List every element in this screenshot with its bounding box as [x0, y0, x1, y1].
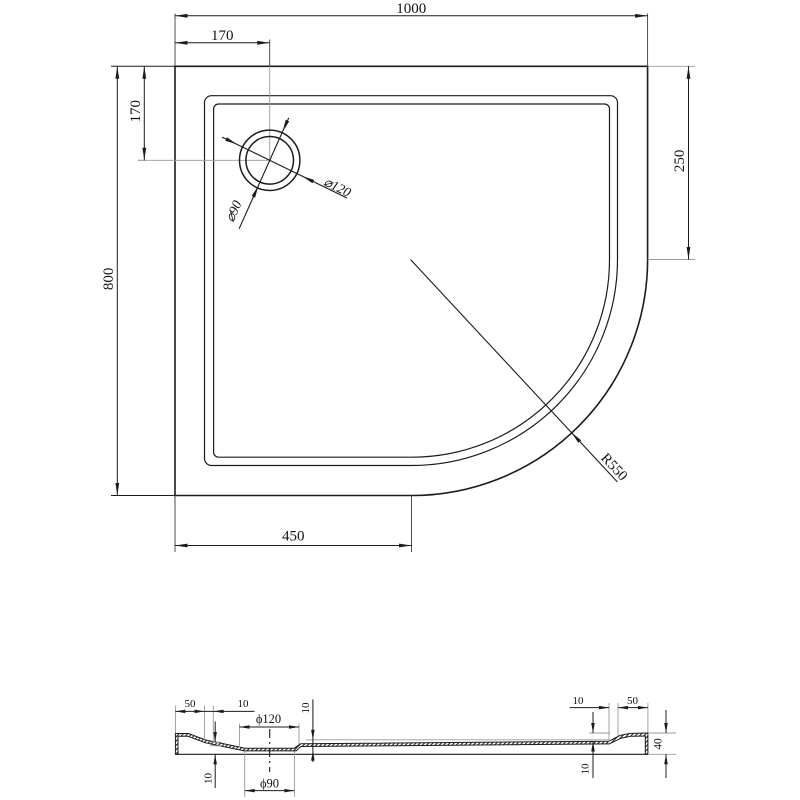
svg-text:800: 800: [101, 268, 117, 291]
svg-text:10: 10: [573, 695, 585, 707]
svg-text:ϕ120: ϕ120: [256, 712, 281, 726]
svg-text:250: 250: [672, 150, 688, 173]
svg-text:10: 10: [202, 773, 214, 785]
svg-text:40: 40: [653, 738, 665, 750]
svg-text:50: 50: [627, 695, 639, 707]
svg-text:10: 10: [580, 763, 592, 775]
svg-text:10: 10: [300, 702, 312, 714]
svg-text:ϕ90: ϕ90: [260, 776, 279, 790]
svg-text:170: 170: [128, 100, 144, 123]
svg-text:50: 50: [185, 698, 197, 710]
svg-text:1000: 1000: [396, 1, 426, 17]
svg-text:450: 450: [282, 529, 305, 545]
svg-text:170: 170: [211, 28, 234, 44]
svg-text:10: 10: [238, 698, 250, 710]
